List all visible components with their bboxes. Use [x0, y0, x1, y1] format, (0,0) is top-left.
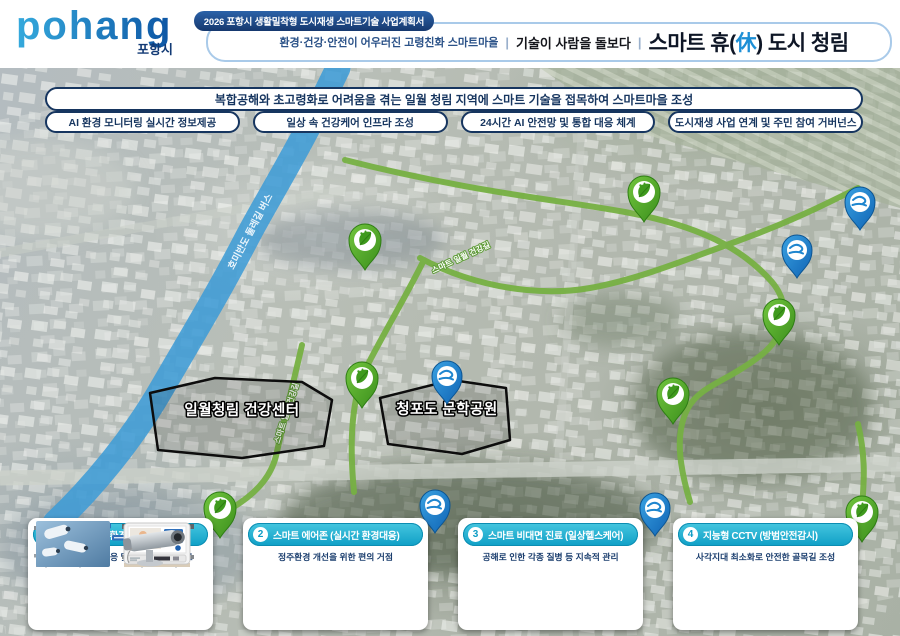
card-smart-cctv: 4 지능형 CCTV (방범안전감시) 사각지대 최소화로 안전한 골목길 조성 — [673, 518, 858, 630]
header: pohang 포항시 2026 포항시 생활밀착형 도시재생 스마트기술 사업계… — [0, 0, 900, 68]
banner-pill-environment: AI 환경 모니터링 실시간 정보제공 — [45, 111, 240, 133]
card-telemedicine: 3 스마트 비대면 진료 (일상헬스케어) 공해로 인한 각종 질병 등 지속적… — [458, 518, 643, 630]
cctv-illustration — [678, 566, 853, 618]
header-separator: | — [505, 35, 509, 50]
card-title: 지능형 CCTV (방범안전감시) — [703, 528, 818, 542]
card-number-badge: 4 — [683, 527, 698, 542]
card-description: 사각지대 최소화로 안전한 골목길 조성 — [678, 550, 853, 563]
card-header: 4 지능형 CCTV (방범안전감시) — [678, 523, 853, 546]
card-title: 스마트 에어존 (실시간 환경대응) — [273, 528, 399, 542]
pohang-logo: pohang 포항시 — [16, 4, 191, 64]
banner-pill-safety: 24시간 AI 안전망 및 통합 대응 체계 — [461, 111, 656, 133]
main-banner: 복합공해와 초고령화로 어려움을 겪는 일월 청림 지역에 스마트 기술을 접목… — [45, 87, 863, 111]
page-title: 스마트 휴(休) 도시 청림 — [649, 27, 849, 57]
aerial-map: 호미반도 둘레길 버스 스마트 일월 건강길 스마트 일월 건강길 일월청림 건… — [0, 68, 900, 636]
header-subtitle: 환경·건강·안전이 어우러진 고령친화 스마트마을 — [279, 34, 498, 50]
banner-pill-health: 일상 속 건강케어 인프라 조성 — [253, 111, 448, 133]
card-description: 정주환경 개선을 위한 편의 거점 — [248, 550, 423, 563]
pohang-logo-subtext: 포항시 — [137, 39, 173, 58]
feature-cards: 1 스마트 트리 (환경데이터 수집) 공해에 실시간 대응 및 누적 데이터 … — [28, 518, 858, 630]
card-title: 스마트 비대면 진료 (일상헬스케어) — [488, 528, 623, 542]
poster-page: pohang 포항시 2026 포항시 생활밀착형 도시재생 스마트기술 사업계… — [0, 0, 900, 636]
page-title-hanja: 休 — [736, 32, 757, 55]
card-header: 3 스마트 비대면 진료 (일상헬스케어) — [463, 523, 638, 546]
header-separator: | — [638, 35, 642, 50]
card-header: 2 스마트 에어존 (실시간 환경대응) — [248, 523, 423, 546]
airzone-illustration — [248, 566, 423, 618]
telemedicine-illustration — [463, 566, 638, 618]
card-smart-airzone: 2 스마트 에어존 (실시간 환경대응) 정주환경 개선을 위한 편의 거점 — [243, 518, 428, 630]
card-number-badge: 2 — [253, 527, 268, 542]
card-description: 공해로 인한 각종 질병 등 지속적 관리 — [463, 550, 638, 563]
page-title-post: ) 도시 청림 — [756, 32, 848, 55]
plan-badge: 2026 포항시 생활밀착형 도시재생 스마트기술 사업계획서 — [194, 11, 434, 31]
banner-pill-row: AI 환경 모니터링 실시간 정보제공 일상 속 건강케어 인프라 조성 24시… — [45, 111, 863, 133]
header-tagline: 기술이 사람을 돌보다 — [516, 33, 631, 52]
smart-tree-illustration — [33, 566, 208, 618]
page-title-pre: 스마트 휴( — [649, 32, 736, 55]
banner-pill-governance: 도시재생 사업 연계 및 주민 참여 거버넌스 — [668, 111, 863, 133]
health-center-label: 일월청림 건강센터 — [184, 401, 299, 419]
card-number-badge: 3 — [468, 527, 483, 542]
